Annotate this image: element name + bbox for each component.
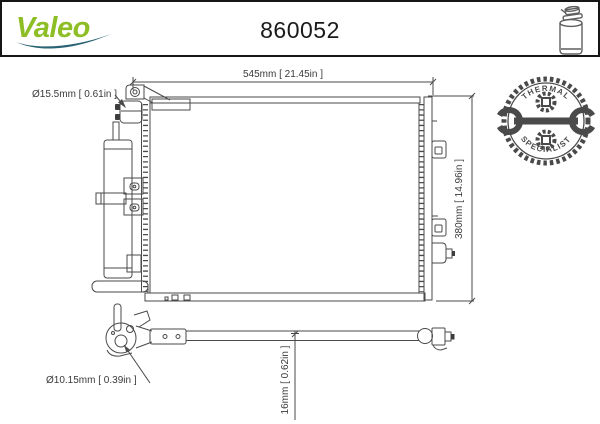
dimension-height-label: 380mm [ 14.96in ] [454, 159, 465, 239]
outlet-fitting [106, 304, 152, 356]
condenser-assembly [92, 85, 455, 301]
dimension-height: 380mm [ 14.96in ] [428, 93, 475, 304]
dimension-width: 545mm [ 21.45in ] [130, 69, 436, 95]
inlet-diameter-label: Ø15.5mm [ 0.61in ] [32, 89, 117, 100]
label-inlet-diameter: Ø15.5mm [ 0.61in ] [32, 89, 126, 108]
dimension-width-label: 545mm [ 21.45in ] [243, 69, 323, 80]
dimension-pipe: 16mm [ 0.62in ] [280, 331, 299, 420]
receiver-drier [92, 122, 148, 293]
pipe-end-fitting [418, 328, 455, 350]
right-brackets [432, 141, 455, 263]
dimension-pipe-label: 16mm [ 0.62in ] [280, 345, 291, 414]
page-title: 860052 [2, 17, 598, 44]
label-outlet-diameter: Ø10.15mm [ 0.39in ] [46, 345, 150, 386]
pipe-flange [150, 329, 186, 344]
pipe [186, 331, 419, 341]
top-left-bracket [126, 85, 170, 103]
receiver-drier-icon [550, 4, 594, 56]
header-bar: Valeo 860052 [0, 0, 600, 57]
lower-pipe-assembly: 16mm [ 0.62in ] Ø10.15mm [ 0.39in ] [46, 304, 455, 420]
technical-drawing: 545mm [ 21.45in ] 380mm [ 14.96in ] Ø15.… [0, 0, 600, 424]
top-header-bar [150, 97, 420, 110]
inlet-fitting [115, 101, 142, 123]
right-tank [424, 97, 438, 300]
bottom-bar [145, 293, 425, 301]
outlet-diameter-label: Ø10.15mm [ 0.39in ] [46, 375, 137, 386]
condenser-core [142, 103, 422, 293]
